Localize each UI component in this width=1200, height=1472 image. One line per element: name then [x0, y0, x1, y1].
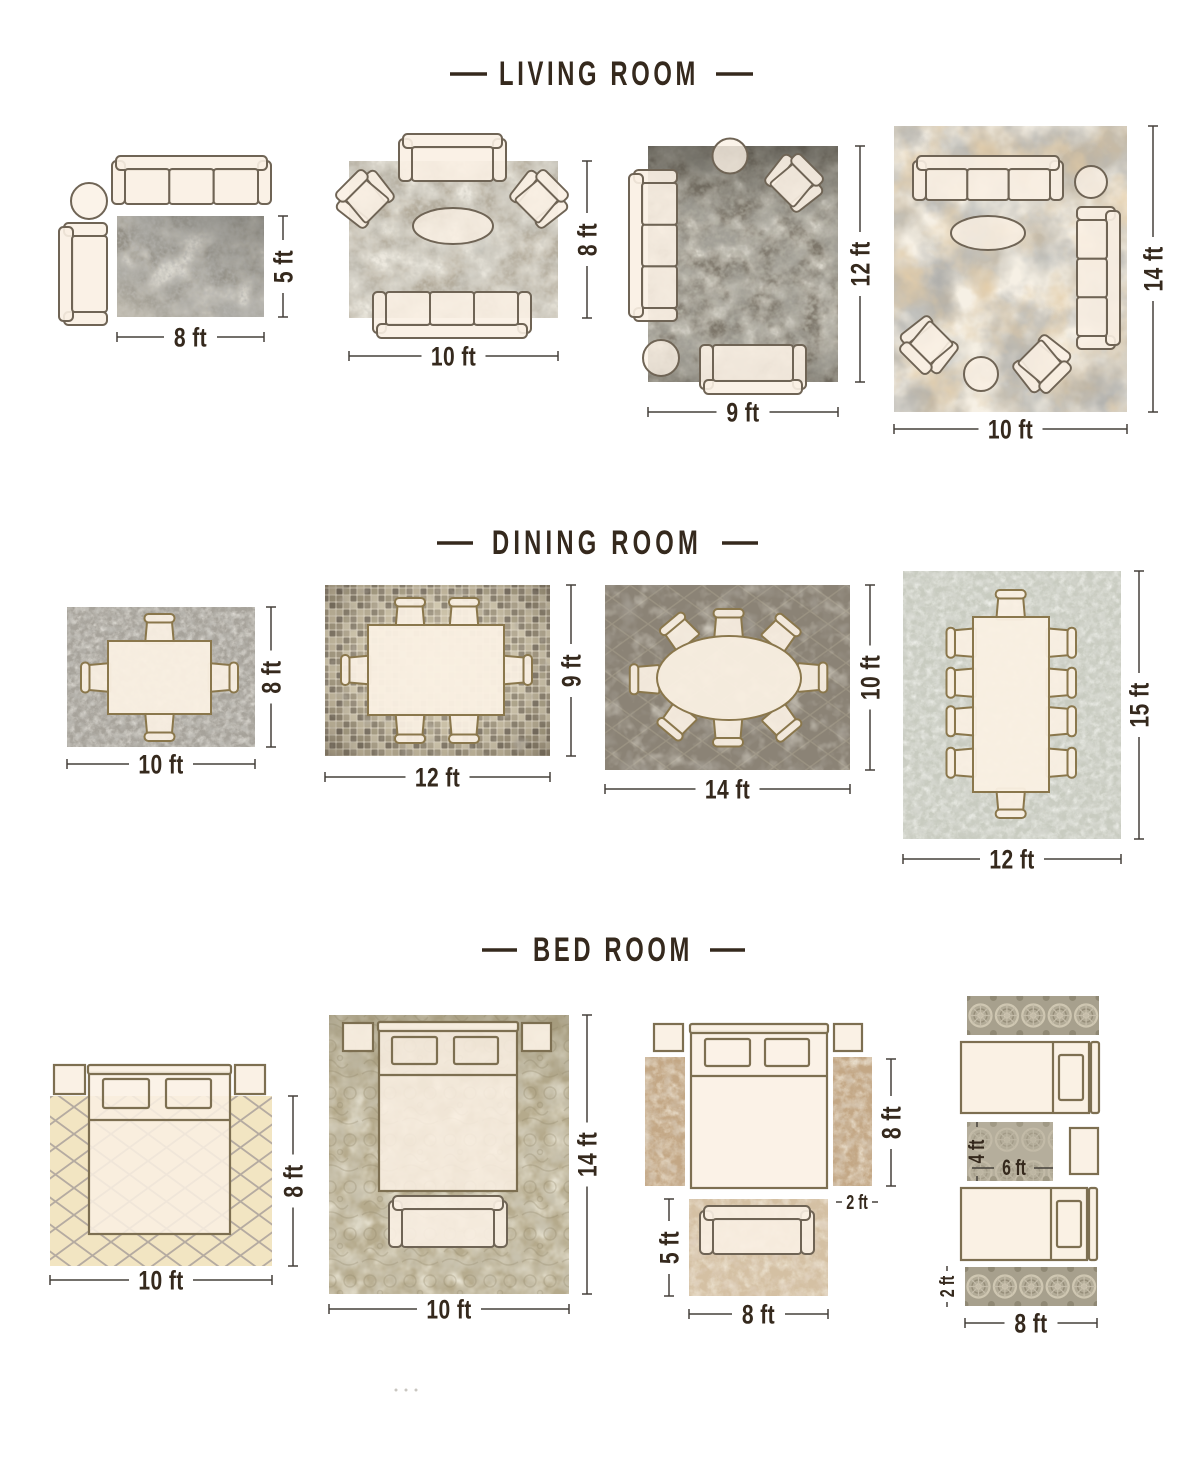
svg-text:10 ft: 10 ft [431, 342, 476, 372]
svg-text:8 ft: 8 ft [877, 1106, 907, 1139]
svg-text:8 ft: 8 ft [174, 323, 207, 353]
svg-text:14 ft: 14 ft [705, 775, 750, 805]
svg-text:5 ft: 5 ft [269, 250, 299, 283]
svg-text:9 ft: 9 ft [726, 398, 759, 428]
svg-text:DINING ROOM: DINING ROOM [492, 524, 702, 562]
svg-text:LIVING ROOM: LIVING ROOM [499, 55, 699, 93]
svg-text:8 ft: 8 ft [279, 1164, 309, 1197]
svg-text:6 ft: 6 ft [1002, 1157, 1026, 1181]
svg-text:10 ft: 10 ft [138, 750, 183, 780]
svg-text:10 ft: 10 ft [856, 655, 886, 700]
svg-text:10 ft: 10 ft [138, 1266, 183, 1296]
svg-text:8 ft: 8 ft [1014, 1309, 1047, 1339]
svg-text:12 ft: 12 ft [989, 845, 1034, 875]
svg-text:2 ft: 2 ft [936, 1276, 959, 1298]
svg-text:8 ft: 8 ft [257, 660, 287, 693]
svg-text:BED ROOM: BED ROOM [533, 931, 693, 969]
svg-text:5 ft: 5 ft [655, 1231, 685, 1264]
svg-text:8 ft: 8 ft [573, 223, 603, 256]
svg-text:8 ft: 8 ft [742, 1300, 775, 1330]
svg-text:14 ft: 14 ft [1139, 246, 1169, 291]
svg-text:10 ft: 10 ft [988, 415, 1033, 445]
svg-text:4 ft: 4 ft [966, 1139, 990, 1163]
svg-text:2 ft: 2 ft [846, 1191, 868, 1214]
svg-text:14 ft: 14 ft [573, 1132, 603, 1177]
svg-text:12 ft: 12 ft [846, 241, 876, 286]
svg-text:9 ft: 9 ft [557, 654, 587, 687]
svg-text:10 ft: 10 ft [426, 1295, 471, 1325]
svg-text:12 ft: 12 ft [415, 763, 460, 793]
svg-text:15 ft: 15 ft [1125, 682, 1155, 727]
